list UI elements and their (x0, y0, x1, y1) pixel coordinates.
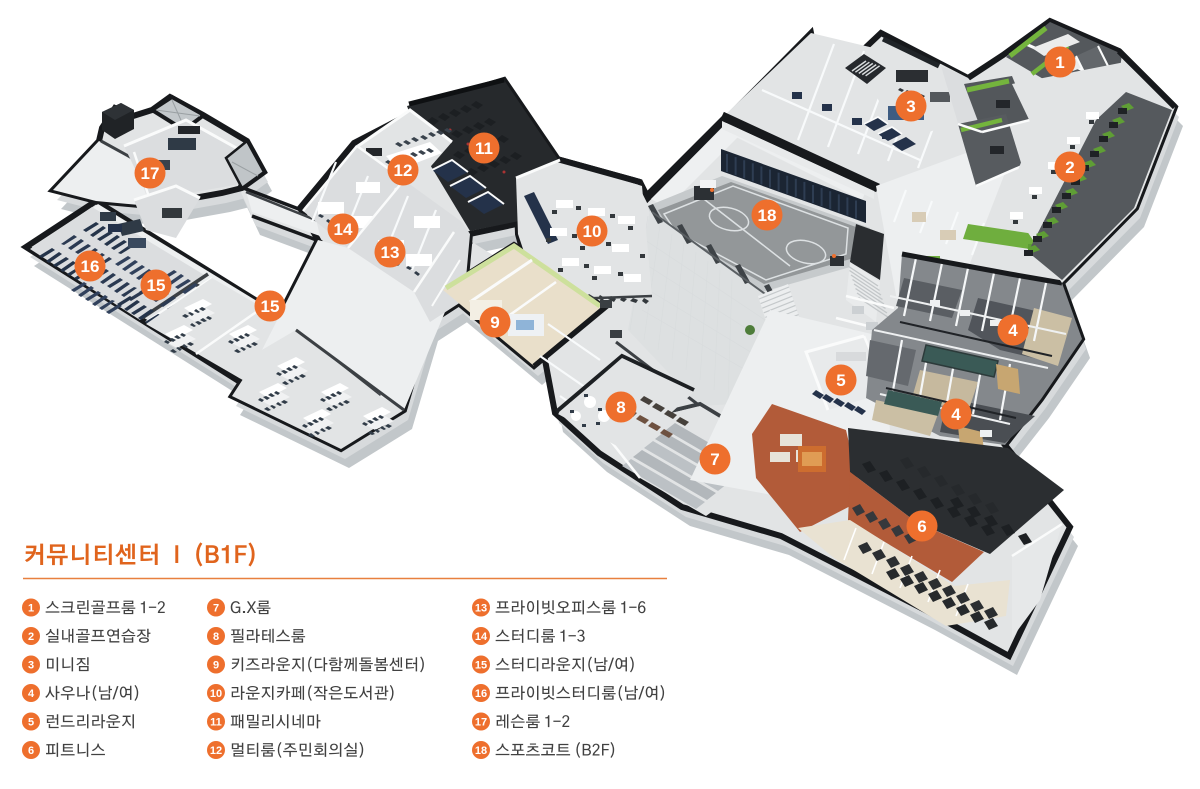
svg-text:14: 14 (475, 631, 488, 643)
svg-text:1: 1 (1055, 53, 1064, 72)
svg-text:7: 7 (213, 602, 219, 614)
svg-text:17: 17 (475, 716, 487, 728)
svg-text:8: 8 (616, 398, 625, 417)
svg-text:9: 9 (213, 659, 219, 671)
svg-text:17: 17 (141, 164, 160, 183)
svg-text:5: 5 (28, 716, 34, 728)
svg-text:9: 9 (490, 313, 499, 332)
svg-text:6: 6 (917, 517, 926, 536)
svg-text:18: 18 (758, 206, 777, 225)
svg-text:18: 18 (475, 745, 487, 757)
svg-text:12: 12 (210, 745, 222, 757)
svg-text:4: 4 (28, 688, 35, 700)
svg-text:6: 6 (28, 745, 34, 757)
svg-text:15: 15 (475, 659, 487, 671)
svg-text:14: 14 (334, 220, 353, 239)
svg-text:5: 5 (836, 371, 845, 390)
svg-text:15: 15 (147, 276, 166, 295)
svg-text:11: 11 (475, 139, 493, 158)
svg-text:8: 8 (213, 631, 219, 643)
svg-text:16: 16 (475, 688, 487, 700)
svg-text:7: 7 (710, 450, 719, 469)
svg-text:13: 13 (381, 243, 400, 262)
svg-text:16: 16 (81, 257, 100, 276)
svg-text:2: 2 (1065, 158, 1074, 177)
svg-text:1: 1 (28, 602, 34, 614)
svg-text:3: 3 (906, 97, 915, 116)
svg-text:3: 3 (28, 659, 34, 671)
svg-text:13: 13 (475, 602, 487, 614)
svg-text:4: 4 (1008, 321, 1018, 340)
svg-text:10: 10 (583, 222, 602, 241)
svg-text:4: 4 (951, 405, 961, 424)
svg-text:2: 2 (28, 631, 34, 643)
svg-text:10: 10 (210, 688, 222, 700)
svg-text:11: 11 (210, 716, 222, 728)
svg-text:12: 12 (394, 161, 413, 180)
svg-text:15: 15 (261, 297, 280, 316)
